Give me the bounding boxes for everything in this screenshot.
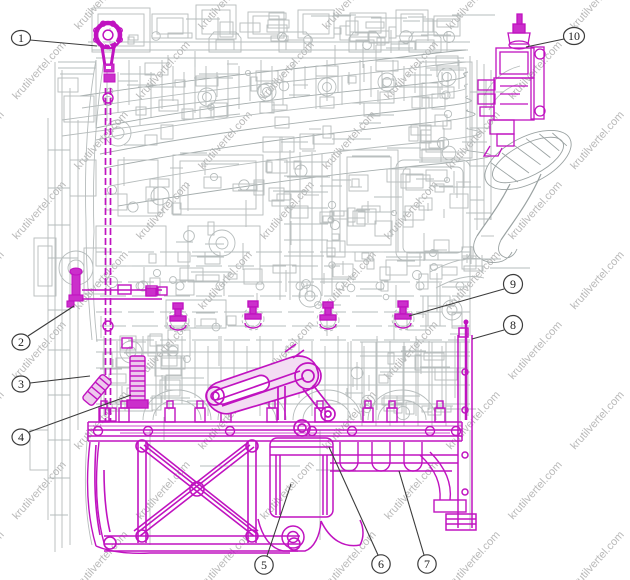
svg-text:8: 8 <box>510 318 516 332</box>
svg-text:7: 7 <box>424 557 430 571</box>
svg-text:1: 1 <box>18 31 24 45</box>
svg-text:5: 5 <box>261 558 267 572</box>
svg-text:4: 4 <box>18 430 24 444</box>
svg-text:9: 9 <box>510 277 516 291</box>
svg-text:2: 2 <box>18 335 24 349</box>
svg-text:3: 3 <box>18 377 24 391</box>
svg-text:10: 10 <box>568 29 580 43</box>
svg-text:6: 6 <box>378 557 384 571</box>
